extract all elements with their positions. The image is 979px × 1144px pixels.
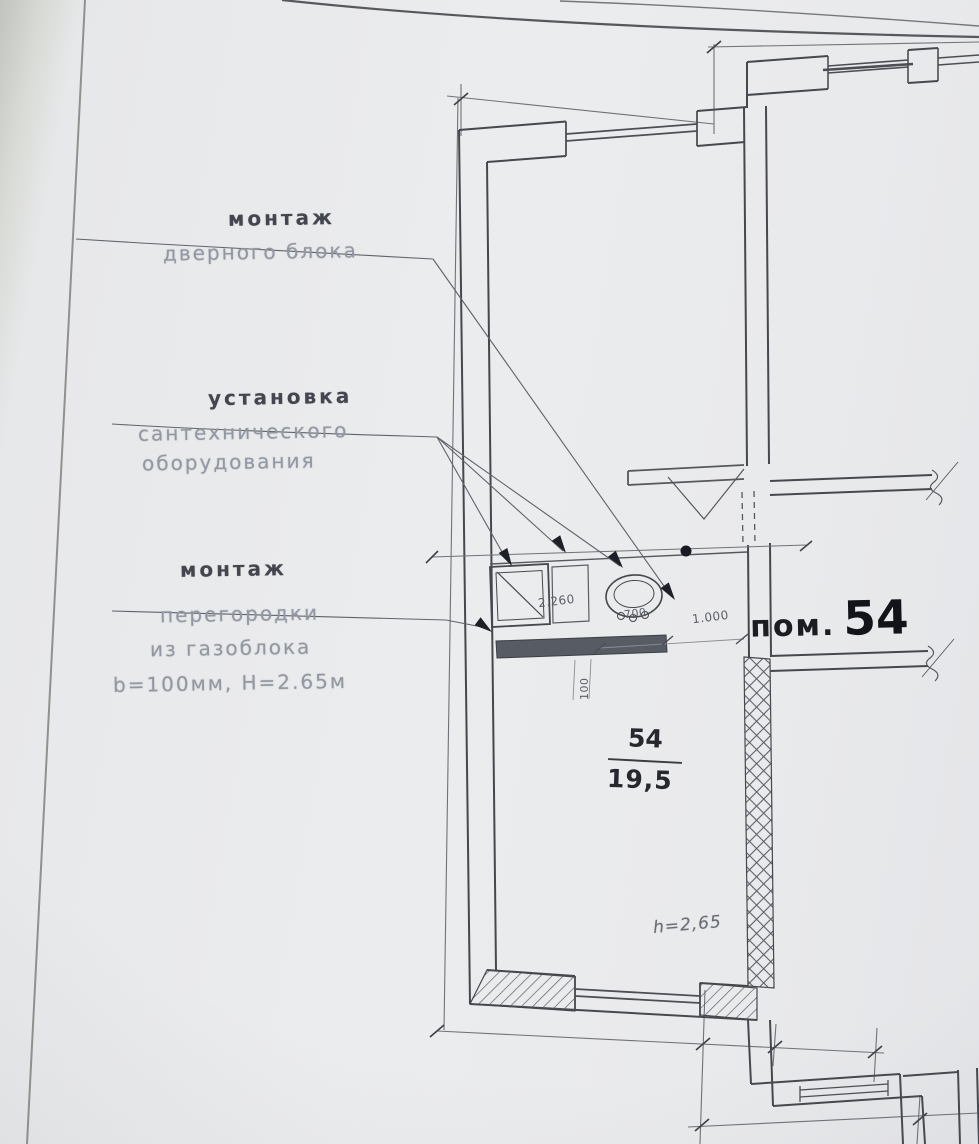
bottom-right-walls	[748, 1020, 979, 1144]
annotation-sanitary-line2: оборудования	[142, 448, 316, 475]
annotation-sanitary-title: установка	[208, 384, 353, 411]
floor-plan-photo: монтаж дверного блока установка сантехни…	[0, 0, 979, 1144]
dimension-ticks	[430, 41, 927, 1131]
new-partition	[496, 635, 667, 658]
dim-partition-thickness: 100	[578, 678, 591, 701]
room-name: пом. 54	[749, 590, 909, 648]
annotation-partition-line1: перегородки	[160, 601, 319, 628]
annotation-door-line1: дверного блока	[163, 238, 358, 265]
annotation-partition-title: монтаж	[180, 556, 287, 582]
room-number: 54	[628, 723, 664, 753]
adjacent-room-walls	[747, 48, 938, 671]
dim-700: 700	[623, 606, 647, 622]
room-name-prefix: пом.	[750, 608, 836, 645]
annotation-door-title: монтаж	[228, 205, 335, 231]
annotation-partition-line3: b=100мм, H=2.65м	[113, 669, 347, 697]
wall-break-marks	[922, 462, 958, 681]
room54-top-window	[566, 111, 697, 156]
room-area: 19,5	[607, 764, 674, 795]
reference-dot	[681, 546, 692, 557]
room-name-number: 54	[843, 590, 910, 646]
annotation-sanitary-line1: сантехнического	[138, 418, 349, 446]
plan-linework	[0, 0, 979, 1144]
doorway-opening	[628, 465, 755, 545]
annotation-partition-line2: из газоблока	[150, 635, 312, 662]
adjacent-room-windows	[823, 48, 979, 89]
hatched-walls	[470, 657, 774, 1020]
